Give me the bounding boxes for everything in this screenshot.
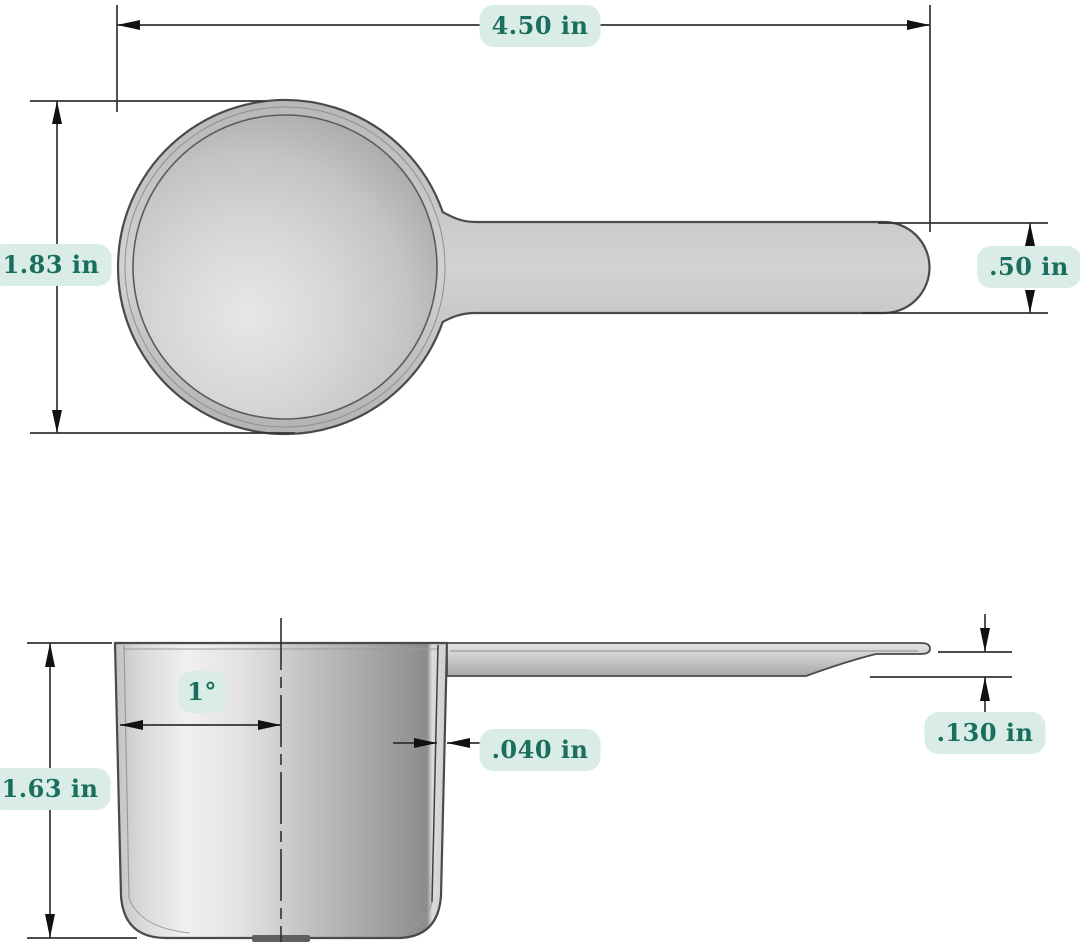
arrowhead-up	[980, 677, 990, 701]
technical-drawing-canvas: 4.50 in 1.83 in .50 in 1° .040 in 1.63 i…	[0, 0, 1080, 946]
arrowhead-left	[117, 20, 140, 30]
dim-label-bowl-diameter: 1.83 in	[0, 244, 111, 286]
arrowhead-down	[52, 410, 62, 433]
side-view	[27, 614, 1012, 942]
arrowhead-down	[45, 914, 55, 938]
arrowhead-up	[45, 643, 55, 667]
scoop-drawing	[0, 0, 1080, 946]
top-view	[30, 5, 1048, 434]
dim-label-cup-depth: 1.63 in	[0, 768, 110, 810]
arrowhead-down	[980, 628, 990, 652]
dim-label-draft-angle: 1°	[178, 671, 226, 713]
dim-label-handle-thickness: .130 in	[925, 712, 1046, 754]
arrowhead-left	[447, 738, 470, 748]
arrowhead-right	[907, 20, 930, 30]
dim-label-overall-length: 4.50 in	[480, 5, 601, 47]
arrowhead-down	[1025, 290, 1035, 313]
handle-side-profile	[447, 643, 930, 676]
dimension-handle-thickness	[870, 614, 1012, 712]
arrowhead-up	[1025, 223, 1035, 246]
dim-label-handle-width: .50 in	[977, 246, 1080, 288]
bowl-interior	[133, 115, 437, 419]
arrowhead-up	[52, 101, 62, 124]
dim-label-wall-thickness: .040 in	[480, 729, 601, 771]
